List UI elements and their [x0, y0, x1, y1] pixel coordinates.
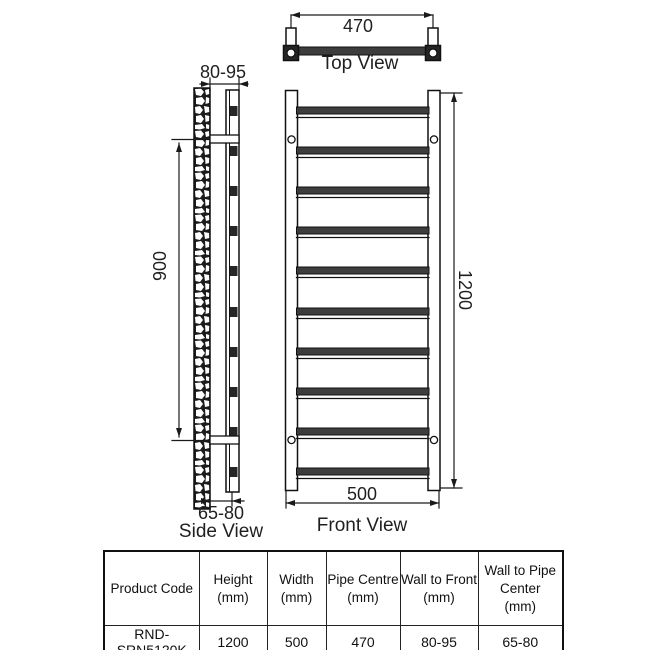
header-width: Width (mm)	[267, 551, 326, 626]
arrowhead-left-icon	[291, 12, 300, 18]
cell-product-code: RND-SRN5120K	[104, 626, 199, 650]
top-view: 470 Top View	[284, 12, 441, 74]
rung-bar	[297, 147, 430, 154]
dimension-80-95: 80-95	[200, 62, 248, 90]
front-rungs	[297, 107, 430, 479]
front-view-caption: Front View	[317, 515, 408, 536]
rung-bar	[297, 308, 430, 315]
mounting-hole-icon	[430, 436, 437, 443]
cell-width: 500	[267, 626, 326, 650]
spec-table: Product Code Height (mm) Width (mm) Pipe…	[103, 550, 564, 650]
side-top-bracket	[210, 135, 239, 143]
side-view: 80-95 900 65-80 Side View	[150, 62, 263, 542]
arrowhead-down-icon	[451, 479, 457, 488]
side-bottom-bracket	[210, 436, 239, 444]
side-rung-section	[230, 106, 238, 116]
top-pipe-centre-dim-label: 470	[343, 16, 373, 36]
width-dim-label: 500	[347, 484, 377, 504]
cell-height: 1200	[199, 626, 267, 650]
height-dim-label: 1200	[455, 270, 475, 310]
dimension-470: 470	[291, 12, 433, 36]
side-rung-section	[230, 186, 238, 196]
rung-bar	[297, 227, 430, 234]
arrowhead-up-icon	[451, 93, 457, 102]
front-left-rail	[286, 91, 298, 491]
top-right-screw-hole-icon	[429, 49, 437, 57]
rung-bar	[297, 388, 430, 395]
header-height: Height (mm)	[199, 551, 267, 626]
spec-table-data-row: RND-SRN5120K 1200 500 470 80-95 65-80	[104, 626, 563, 650]
side-rung-section	[230, 347, 238, 357]
bracket-span-dim-label: 900	[150, 251, 170, 281]
rung-bar	[297, 468, 430, 475]
wall-to-pipe-center-dim-label: 65-80	[198, 503, 244, 523]
rung-bar	[297, 428, 430, 435]
radiator-spec-diagram: 470 Top View	[0, 0, 650, 650]
header-product-code: Product Code	[104, 551, 199, 626]
side-rung-section	[230, 226, 238, 236]
front-right-rail	[428, 91, 440, 491]
arrowhead-right-icon	[430, 500, 439, 506]
side-rung-section	[230, 307, 238, 317]
arrowhead-down-icon	[176, 428, 182, 437]
top-left-screw-hole-icon	[287, 49, 295, 57]
arrowhead-left-icon	[286, 500, 295, 506]
rung-bar	[297, 107, 430, 114]
rung-bar	[297, 348, 430, 355]
front-view: 1200 500 Front View	[286, 91, 476, 537]
top-left-bracket-arm	[286, 28, 296, 47]
side-rung-section	[230, 467, 238, 477]
cell-pipe-centre: 470	[326, 626, 400, 650]
dimension-500: 500	[286, 484, 439, 508]
mounting-hole-icon	[430, 136, 437, 143]
top-view-caption: Top View	[322, 53, 399, 74]
dimension-1200: 1200	[441, 93, 475, 488]
mounting-hole-icon	[288, 436, 295, 443]
rung-bar	[297, 187, 430, 194]
side-view-caption: Side View	[179, 521, 263, 542]
side-rung-section	[230, 387, 238, 397]
arrowhead-right-icon	[424, 12, 433, 18]
spec-table-header-row: Product Code Height (mm) Width (mm) Pipe…	[104, 551, 563, 626]
header-wall-to-front: Wall to Front (mm)	[400, 551, 478, 626]
top-right-bracket-arm	[428, 28, 438, 47]
mounting-hole-icon	[288, 136, 295, 143]
header-pipe-centre: Pipe Centre (mm)	[326, 551, 400, 626]
header-wall-to-pipe-center: Wall to Pipe Center (mm)	[478, 551, 563, 626]
side-rung-section	[230, 146, 238, 156]
cell-wall-to-pipe-center: 65-80	[478, 626, 563, 650]
side-rung-section	[230, 266, 238, 276]
rung-bar	[297, 267, 430, 274]
cell-wall-to-front: 80-95	[400, 626, 478, 650]
wall-hatch	[194, 88, 210, 509]
arrowhead-up-icon	[176, 143, 182, 152]
